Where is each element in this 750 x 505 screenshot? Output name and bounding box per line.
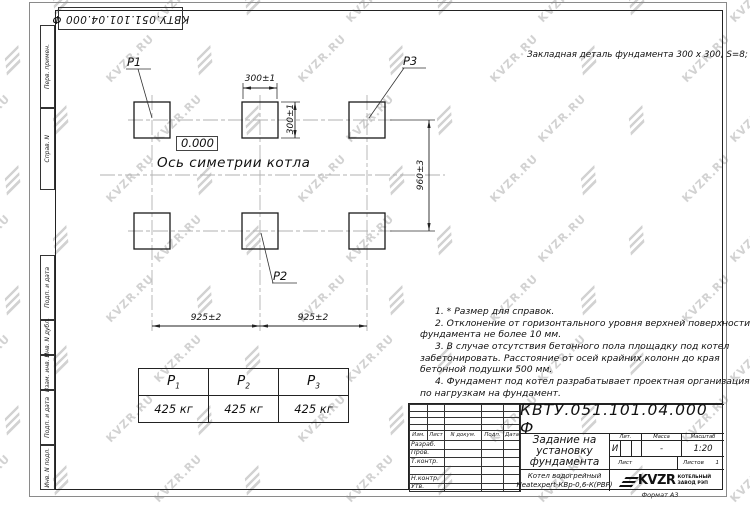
margin-box-podp-data-2: Подп. и дата bbox=[40, 390, 55, 445]
row-tkontr: Т.контр. bbox=[410, 458, 445, 467]
lit-cell-2 bbox=[620, 440, 631, 456]
kvzr-logo-icon bbox=[619, 475, 640, 487]
pad-label-p1: P1 bbox=[127, 55, 141, 69]
drawing-title: Задание на установку фундамента bbox=[519, 433, 609, 469]
note-2: 2. Отклонение от горизонтального уровня … bbox=[420, 318, 750, 341]
title-block: Изм. Лист N докум. Подп. Дата Разраб. Пр… bbox=[408, 403, 723, 490]
boiler-symmetry-axis-label: Ось симетрии котла bbox=[157, 155, 310, 171]
sheet-number-cell: Лист bbox=[609, 456, 677, 469]
load-value-p1: 425 кг bbox=[139, 396, 209, 423]
note-3: 3. В случае отсутствия бетонного пола пл… bbox=[420, 341, 750, 376]
signature-table: Изм. Лист N докум. Подп. Дата Разраб. Пр… bbox=[409, 404, 521, 492]
scale-label: Масштаб bbox=[681, 433, 724, 440]
margin-box-sprav-n: Справ. N bbox=[40, 108, 55, 190]
leader-lines bbox=[126, 68, 426, 283]
note-1: 1. * Размер для справок. bbox=[420, 306, 750, 318]
row-utv: Утв. bbox=[410, 483, 445, 492]
row-nkontr: Н.контр. bbox=[410, 475, 445, 484]
embedded-part-note: Закладная деталь фундамента 300 x 300, S… bbox=[527, 50, 748, 60]
elevation-marker: 0.000 bbox=[176, 136, 218, 151]
load-table: P1 P2 P3 425 кг 425 кг 425 кг bbox=[138, 368, 349, 423]
company-logo-cell: KVZR КОТЕЛЬНЫЙ ЗАВОД РЭП bbox=[609, 469, 724, 491]
top-stamp-text: КВТУ.051.101.04.000 Ф bbox=[52, 13, 189, 25]
dim-col-left-label: 925±2 bbox=[183, 313, 229, 323]
load-table-value-row: 425 кг 425 кг 425 кг bbox=[139, 396, 349, 423]
signature-header-row: Изм. Лист N докум. Подп. Дата bbox=[410, 431, 521, 441]
sheets-total-cell: Листов 1 bbox=[677, 456, 724, 469]
mass-label: Масса bbox=[641, 433, 681, 440]
margin-box-inv-dubl: Инв. N дубл. bbox=[40, 320, 55, 355]
pad-label-p2: P2 bbox=[273, 269, 287, 283]
company-name: КОТЕЛЬНЫЙ ЗАВОД РЭП bbox=[677, 475, 711, 486]
margin-box-podp-data-1: Подп. и дата bbox=[40, 255, 55, 320]
lit-cell-3 bbox=[631, 440, 641, 456]
mass-value: - bbox=[641, 440, 681, 456]
note-4: 4. Фундамент под котел разрабатывает про… bbox=[420, 376, 750, 399]
product-name: Котел водогрейный Heatexpert-КВр-0,6-К(Р… bbox=[519, 469, 609, 491]
lit-value: И bbox=[609, 440, 620, 456]
row-razrab: Разраб. bbox=[410, 441, 445, 450]
pad-label-p3: P3 bbox=[403, 54, 417, 68]
kvzr-logo-text: KVZR bbox=[638, 473, 676, 488]
dim-pad-width-label: 300±1 bbox=[237, 74, 283, 84]
drawing-sheet: KVZR.RUKVZR.RUKVZR.RUKVZR.RUKVZR.RUKVZR.… bbox=[0, 0, 750, 500]
sheets-count: 1 bbox=[715, 460, 719, 466]
scale-value: 1:20 bbox=[681, 440, 724, 456]
load-value-p3: 425 кг bbox=[279, 396, 349, 423]
title-block-doc-number: КВТУ.051.101.04.000 Ф bbox=[519, 404, 724, 433]
margin-box-perv-primen: Перв. примен. bbox=[40, 25, 55, 108]
technical-notes: 1. * Размер для справок. 2. Отклонение о… bbox=[420, 306, 750, 400]
load-header-p2: P2 bbox=[209, 369, 279, 396]
top-document-stamp: КВТУ.051.101.04.000 Ф bbox=[58, 7, 183, 30]
load-table-header-row: P1 P2 P3 bbox=[139, 369, 349, 396]
format-label: Формат А3 bbox=[600, 491, 720, 499]
foundation-pads bbox=[134, 102, 385, 249]
dim-row-gap-label: 960±3 bbox=[416, 152, 426, 198]
dim-pad-height-label: 300±1 bbox=[286, 96, 296, 142]
load-header-p3: P3 bbox=[279, 369, 349, 396]
load-header-p1: P1 bbox=[139, 369, 209, 396]
margin-box-inv-podl: Инв. N подл. bbox=[40, 445, 55, 490]
lit-label: Лит. bbox=[609, 433, 641, 440]
dim-col-right-label: 925±2 bbox=[290, 313, 336, 323]
margin-box-vzam-inv: Взам. инв. N bbox=[40, 355, 55, 390]
load-value-p2: 425 кг bbox=[209, 396, 279, 423]
row-prov: Пров. bbox=[410, 449, 445, 458]
